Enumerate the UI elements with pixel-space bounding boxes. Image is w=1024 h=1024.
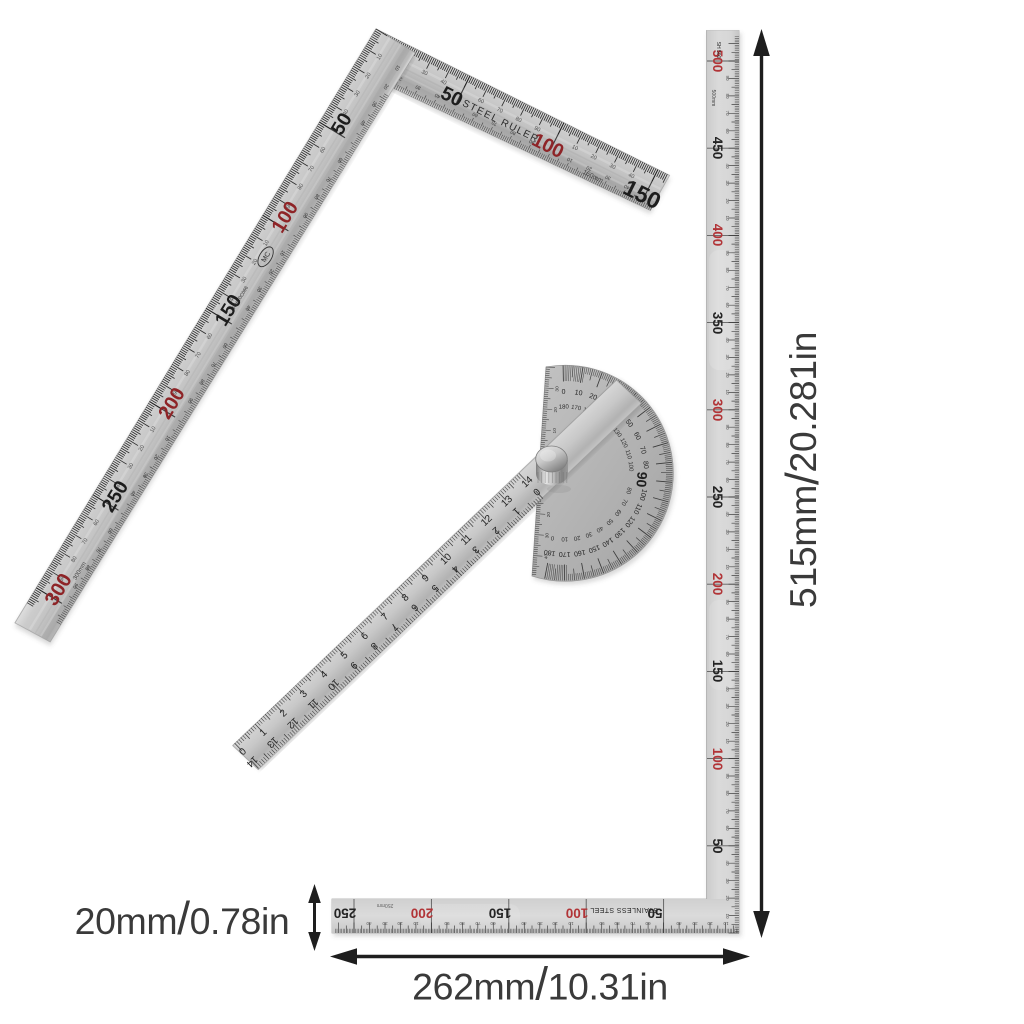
- svg-text:250: 250: [334, 905, 357, 920]
- svg-text:10: 10: [725, 215, 730, 221]
- svg-text:10: 10: [725, 564, 730, 570]
- svg-text:60: 60: [490, 921, 496, 926]
- svg-text:170: 170: [559, 550, 571, 557]
- svg-text:80: 80: [459, 921, 465, 926]
- svg-text:80: 80: [614, 921, 620, 926]
- svg-text:0: 0: [562, 389, 566, 396]
- svg-text:70: 70: [725, 808, 730, 814]
- svg-text:30: 30: [537, 921, 543, 926]
- svg-text:40: 40: [543, 554, 549, 560]
- svg-text:70: 70: [725, 459, 730, 465]
- svg-text:30: 30: [725, 703, 730, 709]
- svg-text:60: 60: [725, 302, 730, 308]
- svg-text:20: 20: [552, 921, 558, 926]
- svg-text:80: 80: [725, 93, 730, 99]
- svg-text:90: 90: [599, 921, 605, 926]
- svg-text:10: 10: [725, 389, 730, 395]
- svg-text:60: 60: [725, 128, 730, 134]
- svg-text:200: 200: [710, 573, 725, 596]
- svg-text:40: 40: [366, 921, 372, 926]
- svg-text:100: 100: [627, 461, 634, 472]
- svg-text:40: 40: [725, 860, 730, 866]
- svg-text:10: 10: [574, 389, 583, 397]
- svg-text:20: 20: [397, 921, 403, 926]
- svg-text:30: 30: [692, 921, 698, 926]
- svg-text:20: 20: [725, 895, 730, 901]
- svg-text:262mm/10.31in: 262mm/10.31in: [412, 958, 668, 1010]
- svg-text:50: 50: [710, 838, 725, 853]
- svg-text:40: 40: [725, 686, 730, 692]
- svg-text:40: 40: [725, 511, 730, 517]
- svg-text:90: 90: [725, 424, 730, 430]
- svg-text:60: 60: [725, 825, 730, 831]
- svg-text:90: 90: [725, 773, 730, 779]
- svg-text:500mm: 500mm: [710, 90, 716, 107]
- svg-text:150: 150: [710, 660, 725, 683]
- svg-text:20: 20: [546, 512, 552, 518]
- svg-text:STAINLESS STEEL: STAINLESS STEEL: [590, 906, 658, 913]
- svg-text:10: 10: [725, 738, 730, 744]
- svg-text:70: 70: [725, 285, 730, 291]
- svg-text:70: 70: [630, 921, 636, 926]
- svg-text:30: 30: [555, 386, 561, 392]
- svg-text:30: 30: [725, 529, 730, 535]
- svg-text:70: 70: [725, 634, 730, 640]
- svg-text:20: 20: [725, 372, 730, 378]
- svg-text:30: 30: [725, 878, 730, 884]
- svg-text:90: 90: [725, 250, 730, 256]
- svg-text:60: 60: [725, 477, 730, 483]
- svg-text:SH 500: SH 500: [715, 42, 721, 59]
- svg-text:20: 20: [707, 921, 713, 926]
- svg-text:350: 350: [710, 312, 725, 335]
- svg-text:30: 30: [545, 533, 551, 539]
- svg-text:90: 90: [725, 599, 730, 605]
- svg-text:20: 20: [725, 721, 730, 727]
- svg-text:10: 10: [561, 535, 568, 541]
- svg-text:90: 90: [444, 921, 450, 926]
- svg-text:40: 40: [725, 337, 730, 343]
- svg-text:10: 10: [568, 921, 574, 926]
- svg-text:200: 200: [411, 905, 434, 920]
- svg-text:515mm/20.281in: 515mm/20.281in: [776, 332, 828, 608]
- svg-text:80: 80: [725, 790, 730, 796]
- svg-text:30: 30: [725, 180, 730, 186]
- svg-text:250mm: 250mm: [377, 902, 394, 908]
- svg-text:30: 30: [382, 921, 388, 926]
- svg-text:90: 90: [633, 471, 650, 488]
- svg-text:60: 60: [725, 651, 730, 657]
- svg-text:40: 40: [725, 163, 730, 169]
- svg-text:40: 40: [676, 921, 682, 926]
- svg-text:60: 60: [645, 921, 651, 926]
- svg-text:10: 10: [723, 921, 729, 926]
- svg-text:10: 10: [413, 921, 419, 926]
- svg-text:20: 20: [553, 407, 559, 413]
- svg-text:150: 150: [489, 905, 512, 920]
- svg-text:80: 80: [725, 616, 730, 622]
- svg-text:20mm/0.78in: 20mm/0.78in: [75, 892, 290, 944]
- svg-text:80: 80: [725, 442, 730, 448]
- svg-text:250: 250: [710, 486, 725, 509]
- svg-text:80: 80: [641, 461, 649, 470]
- svg-text:300: 300: [710, 399, 725, 422]
- svg-text:100: 100: [566, 905, 589, 920]
- svg-text:70: 70: [475, 921, 481, 926]
- svg-text:20: 20: [725, 198, 730, 204]
- svg-text:10: 10: [725, 913, 730, 919]
- svg-text:30: 30: [725, 354, 730, 360]
- svg-text:10: 10: [552, 428, 558, 434]
- svg-text:450: 450: [710, 137, 725, 160]
- svg-text:400: 400: [710, 224, 725, 247]
- svg-text:180: 180: [559, 404, 570, 410]
- svg-text:40: 40: [521, 921, 527, 926]
- svg-text:80: 80: [725, 267, 730, 273]
- svg-text:90: 90: [725, 75, 730, 81]
- svg-text:20: 20: [725, 546, 730, 552]
- svg-text:100: 100: [710, 748, 725, 771]
- svg-text:70: 70: [725, 110, 730, 116]
